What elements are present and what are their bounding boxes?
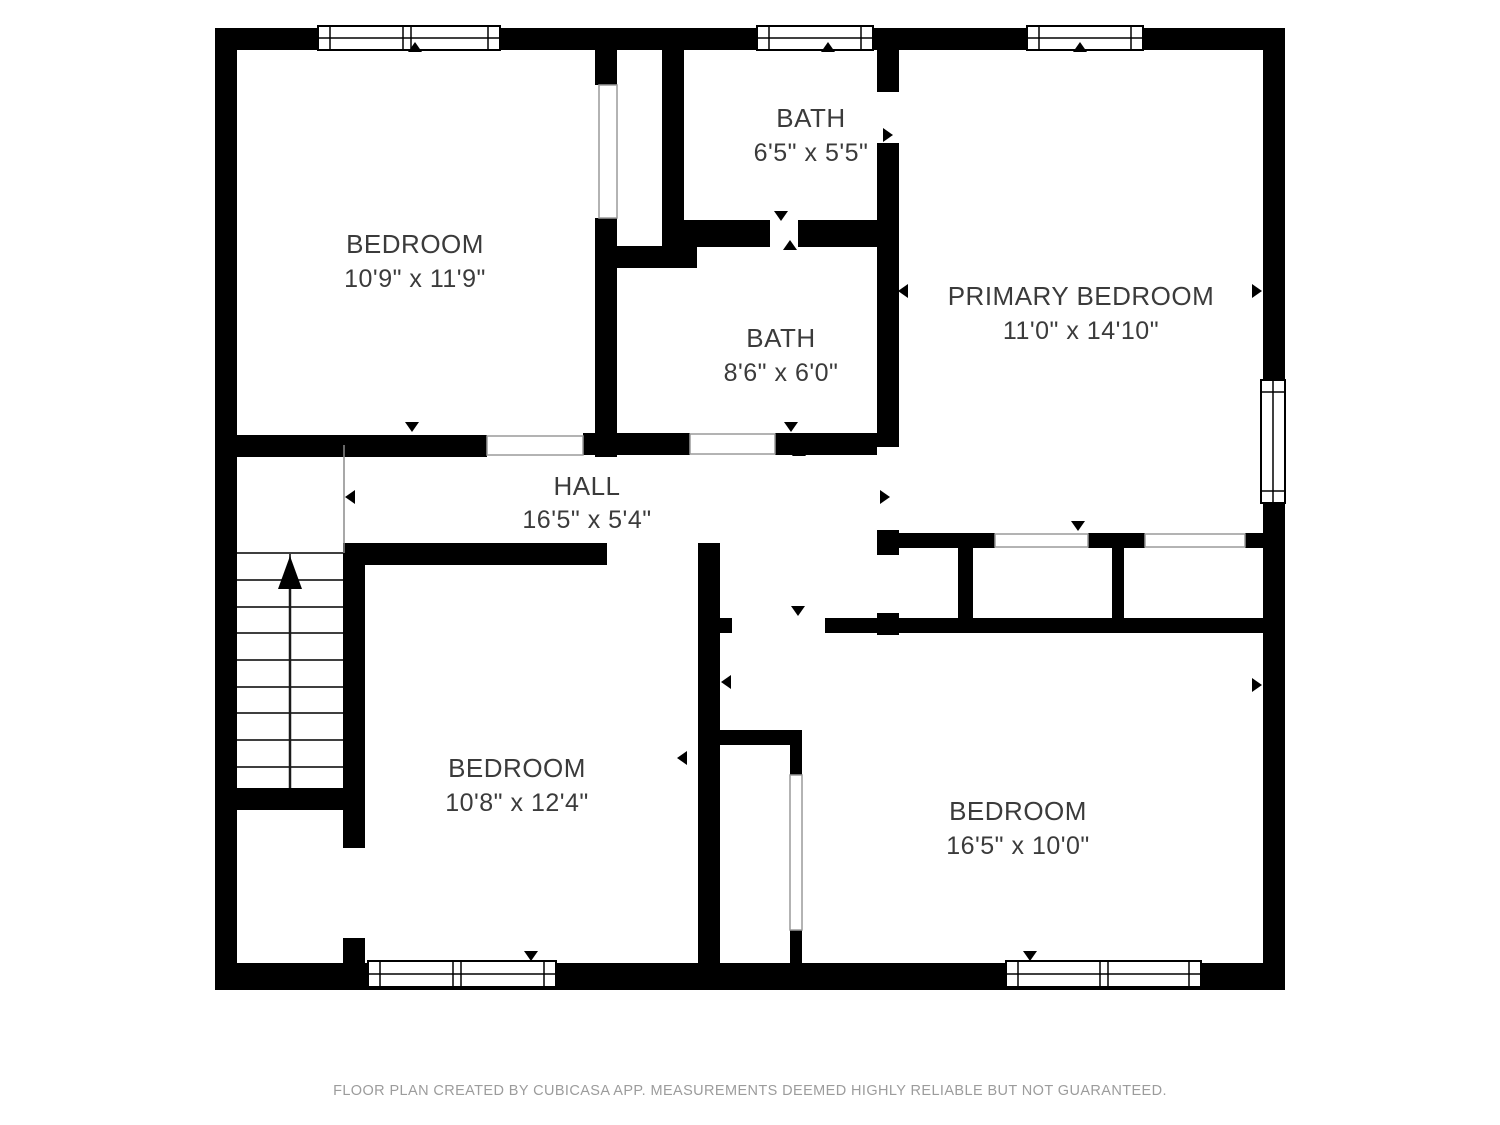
room-label-bedroom-bottom-left: BEDROOM: [448, 753, 586, 783]
wall-segment: [237, 788, 365, 810]
wall-segment: [698, 543, 720, 965]
wall-segment: [775, 433, 877, 455]
door-marker-icon: [880, 490, 890, 504]
wall-segment: [595, 246, 697, 268]
room-dims-bath-middle: 8'6" x 6'0": [724, 359, 839, 387]
wall-segment: [237, 435, 487, 457]
wall-segment: [790, 930, 802, 965]
door-marker-icon: [1252, 284, 1262, 298]
room-dims-bedroom-bottom-right: 16'5" x 10'0": [946, 832, 1090, 860]
wall-segment: [583, 433, 690, 455]
room-dims-hall: 16'5" x 5'4": [522, 506, 651, 534]
staircase: [237, 445, 344, 788]
room-dims-primary-bedroom: 11'0" x 14'10": [1003, 317, 1159, 345]
wall-segment: [595, 28, 617, 85]
cased-opening: [690, 434, 775, 454]
window: [318, 26, 500, 50]
window: [368, 961, 556, 987]
wall-segment: [877, 143, 899, 447]
wall-segment: [684, 220, 770, 247]
door-marker-icon: [405, 422, 419, 432]
wall-segment: [662, 28, 684, 268]
closet-slider-opening: [995, 534, 1088, 547]
floor-plan: BEDROOM 10'9" x 11'9" BATH 6'5" x 5'5" B…: [0, 0, 1500, 1125]
exterior-walls: [215, 28, 1285, 990]
wall-segment: [720, 618, 732, 633]
room-label-bedroom-bottom-right: BEDROOM: [949, 796, 1087, 826]
stairs-up-arrow: [278, 556, 302, 788]
wall-segment: [958, 548, 973, 618]
wall-segment: [343, 938, 365, 965]
wall-right: [1263, 28, 1285, 990]
room-dims-bedroom-top-left: 10'9" x 11'9": [344, 265, 486, 293]
interior-walls: [237, 28, 1263, 965]
window: [1006, 961, 1201, 987]
wall-segment: [825, 618, 1263, 633]
wall-segment: [720, 730, 802, 745]
wall-segment: [343, 543, 365, 810]
door-marker-icon: [784, 422, 798, 432]
wall-segment: [798, 220, 886, 247]
room-label-primary-bedroom: PRIMARY BEDROOM: [948, 281, 1215, 311]
door-marker-icon: [783, 240, 797, 250]
door-marker-icon: [883, 128, 893, 142]
wall-segment: [343, 543, 607, 565]
room-dims-bath-top: 6'5" x 5'5": [754, 139, 869, 167]
direction-markers: [219, 42, 1262, 961]
wall-segment: [343, 810, 365, 848]
window-marker-icon: [1023, 951, 1037, 961]
door-marker-icon: [1252, 678, 1262, 692]
door-marker-icon: [898, 284, 908, 298]
window: [757, 26, 873, 50]
footer-disclaimer: FLOOR PLAN CREATED BY CUBICASA APP. MEAS…: [333, 1083, 1167, 1099]
pocket-opening: [599, 85, 617, 218]
door-marker-icon: [721, 675, 731, 689]
door-marker-icon: [774, 211, 788, 221]
window: [1027, 26, 1143, 50]
wall-segment: [1245, 533, 1263, 548]
closet-slider-opening: [1145, 534, 1245, 547]
room-dims-bedroom-bottom-left: 10'8" x 12'4": [445, 789, 589, 817]
wall-segment: [877, 50, 899, 92]
cased-opening: [487, 436, 583, 455]
closet-slider-opening: [790, 775, 802, 930]
window: [1261, 380, 1285, 503]
room-label-hall: HALL: [553, 471, 620, 501]
wall-segment: [1112, 540, 1124, 618]
wall-segment: [877, 533, 995, 548]
door-marker-icon: [1071, 521, 1085, 531]
door-marker-icon: [677, 751, 687, 765]
room-label-bath-middle: BATH: [746, 323, 815, 353]
wall-segment: [790, 745, 802, 775]
room-label-bedroom-top-left: BEDROOM: [346, 229, 484, 259]
door-marker-icon: [345, 490, 355, 504]
wall-left: [215, 28, 237, 990]
door-marker-icon: [791, 606, 805, 616]
window-marker-icon: [524, 951, 538, 961]
room-label-bath-top: BATH: [776, 103, 845, 133]
